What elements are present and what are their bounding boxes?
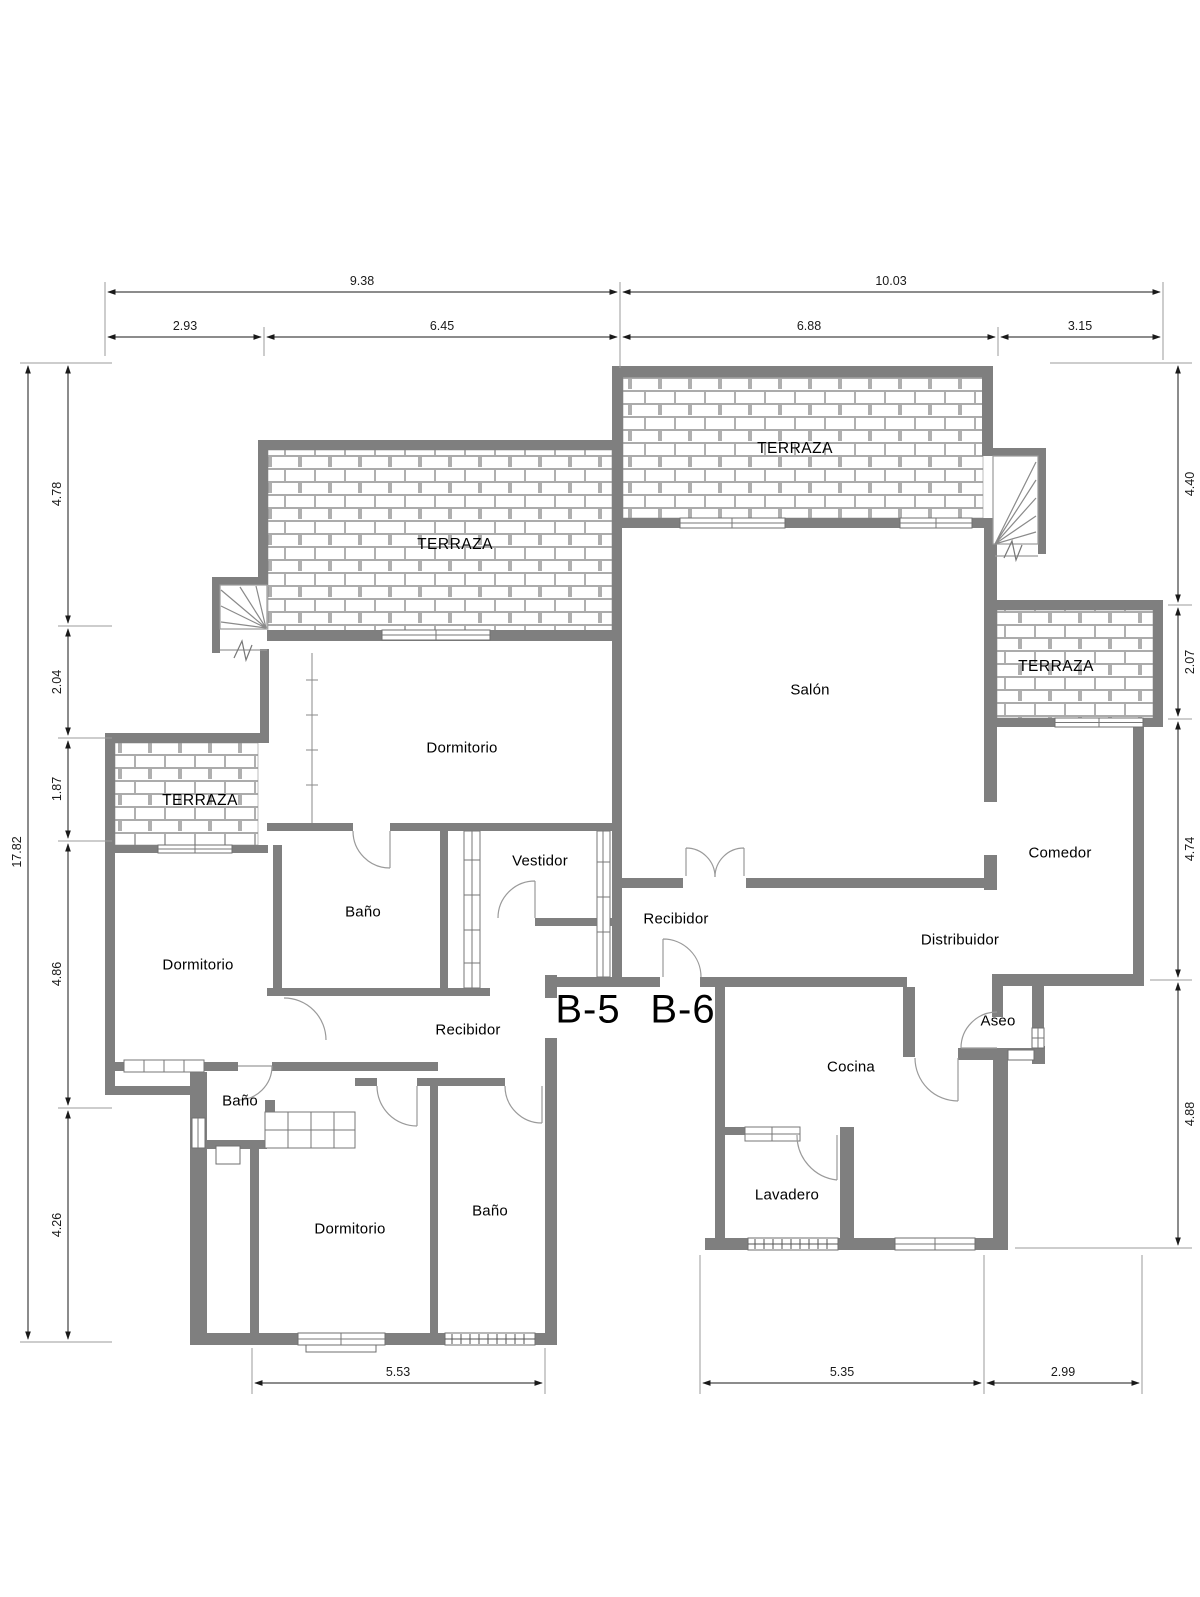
dim-top-1003: 10.03 xyxy=(875,274,906,288)
dim-left-426: 4.26 xyxy=(50,1213,64,1237)
dim-top-293: 2.93 xyxy=(173,319,197,333)
floor-plan-page: TERRAZA TERRAZA TERRAZA TERRAZA Dormitor… xyxy=(0,0,1200,1597)
stairs-right xyxy=(993,456,1038,560)
room-label-dormitorio-top: Dormitorio xyxy=(426,740,497,757)
terraza-top-left-label: TERRAZA xyxy=(417,536,493,554)
dim-right-474: 4.74 xyxy=(1183,837,1197,861)
terraza-left-label: TERRAZA xyxy=(162,792,238,810)
room-label-salon: Salón xyxy=(790,682,829,699)
room-label-distribuidor: Distribuidor xyxy=(921,932,999,949)
room-label-recibidor-b5: Recibidor xyxy=(435,1022,500,1039)
room-label-bano-left: Baño xyxy=(222,1093,258,1110)
room-label-aseo: Aseo xyxy=(981,1013,1016,1030)
room-label-dormitorio-left: Dormitorio xyxy=(162,957,233,974)
room-label-cocina: Cocina xyxy=(827,1059,875,1076)
dim-left-204: 2.04 xyxy=(50,670,64,694)
unit-label-b5: B-5 xyxy=(555,988,620,1033)
dim-top-645: 6.45 xyxy=(430,319,454,333)
dim-bottom-553: 5.53 xyxy=(386,1365,410,1379)
closets xyxy=(124,653,800,1148)
dim-left-478: 4.78 xyxy=(50,482,64,506)
dim-right-207: 2.07 xyxy=(1183,650,1197,674)
terraza-right-label: TERRAZA xyxy=(1018,658,1094,676)
stairs-left xyxy=(220,585,267,660)
dim-left-1782: 17.82 xyxy=(10,836,24,867)
dim-top-315: 3.15 xyxy=(1068,319,1092,333)
room-label-lavadero: Lavadero xyxy=(755,1187,819,1204)
dim-right-440: 4.40 xyxy=(1183,472,1197,496)
unit-label-b6: B-6 xyxy=(650,988,715,1033)
dim-left-486: 4.86 xyxy=(50,962,64,986)
room-label-vestidor: Vestidor xyxy=(512,853,568,870)
room-label-recibidor-b6: Recibidor xyxy=(643,911,708,928)
room-label-dormitorio-bottom: Dormitorio xyxy=(314,1221,385,1238)
dim-top-688: 6.88 xyxy=(797,319,821,333)
room-label-comedor: Comedor xyxy=(1028,845,1091,862)
dim-left-187: 1.87 xyxy=(50,777,64,801)
room-label-bano-principal: Baño xyxy=(345,904,381,921)
room-label-bano-bottom: Baño xyxy=(472,1203,508,1220)
dim-bottom-299: 2.99 xyxy=(1051,1365,1075,1379)
dim-right-488: 4.88 xyxy=(1183,1102,1197,1126)
terraza-top-right-label: TERRAZA xyxy=(757,440,833,458)
dim-bottom-535: 5.35 xyxy=(830,1365,854,1379)
dim-top-938: 9.38 xyxy=(350,274,374,288)
